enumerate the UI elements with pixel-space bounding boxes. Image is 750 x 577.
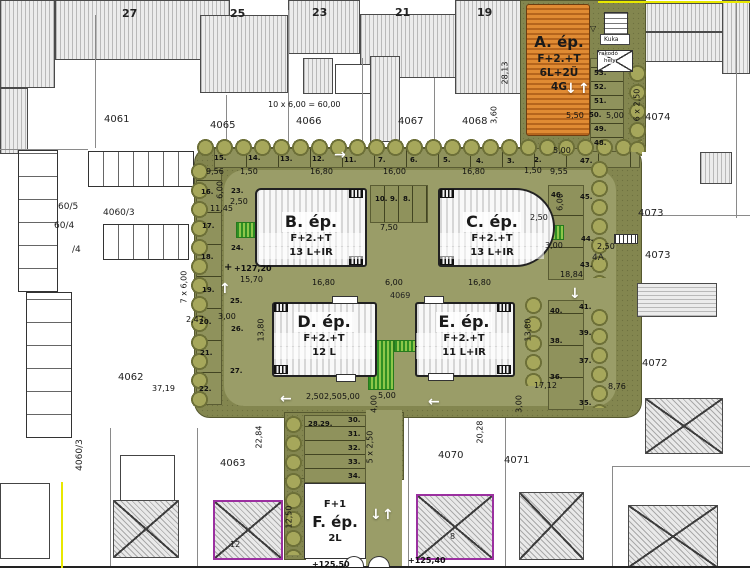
garage-row xyxy=(88,151,194,187)
parking-number: 41. xyxy=(579,303,591,311)
parking-number: 26. xyxy=(231,325,243,333)
dimension: 15,70 xyxy=(240,275,263,284)
parking-number: 30. xyxy=(348,416,360,424)
parking-number: 44. xyxy=(581,235,593,243)
parcel-number: 4060/3 xyxy=(103,208,135,218)
yellow-boundary xyxy=(61,482,63,568)
parcel-number: 60/4 xyxy=(54,221,74,231)
benchmark-icon: + xyxy=(224,262,232,273)
building-b-floors: F+2.+T xyxy=(259,233,363,246)
building-c-floors: F+2.+T xyxy=(440,233,544,246)
parcel-number: 4070 xyxy=(438,450,463,461)
dimension: 5,00 xyxy=(378,391,396,400)
parking-number: 2. xyxy=(534,156,542,164)
dimension: 4,00 xyxy=(370,395,379,413)
garage-row xyxy=(26,292,72,438)
parking-number: 39. xyxy=(579,329,591,337)
building-c-units: 13 L+IR xyxy=(440,247,544,260)
parking-number: 48. xyxy=(594,139,606,147)
parking-number: 53. xyxy=(594,69,606,77)
parking-number: 35. xyxy=(579,399,591,407)
parcel-number: 4067 xyxy=(398,116,423,127)
parking-number: 4. xyxy=(476,157,484,165)
dimension: 37,19 xyxy=(152,384,175,393)
parcel-line xyxy=(505,418,506,567)
parking-number: 37. xyxy=(579,357,591,365)
parking-number: 18. xyxy=(201,253,213,261)
parking-number: 9. xyxy=(390,195,398,203)
parking-number: 13. xyxy=(280,155,292,163)
house-number: 12 xyxy=(230,540,240,549)
stair-hatch xyxy=(349,189,363,198)
house-roof-purple xyxy=(416,494,494,560)
building-e-floors: F+2.+T xyxy=(416,333,512,346)
stair-hatch xyxy=(274,365,288,374)
building-c-label: C. ép. F+2.+T 13 L+IR xyxy=(440,212,544,259)
loading-area-label-1: rakodó xyxy=(599,51,618,57)
dimension: 5,50 xyxy=(566,111,584,120)
site-plan: A. ép. F+2.+T 6L+2Ü 4G ▽ Kuka rakodó hel… xyxy=(0,0,750,577)
parking-number: 34. xyxy=(348,472,360,480)
parking-number: 6. xyxy=(410,156,418,164)
parking-number: 23. xyxy=(231,187,243,195)
parcel-number: /4 xyxy=(72,245,81,255)
parking-number: 15. xyxy=(214,154,226,162)
dimension: 3,00 xyxy=(545,241,563,250)
parcel-number: 4066 xyxy=(296,116,321,127)
dimension: 13,80 xyxy=(257,319,266,342)
parking-strip-mid xyxy=(370,185,428,223)
street-number: 25 xyxy=(230,7,245,20)
building-e-units: 11 L+IR xyxy=(416,347,512,360)
dimension: 9,55 xyxy=(550,167,568,176)
dimension: 16,80 xyxy=(468,278,491,287)
outbuilding xyxy=(120,455,175,502)
dimension: 1,50 xyxy=(524,166,542,175)
arrow-left-icon: ← xyxy=(280,392,292,406)
dimension: 18,84 xyxy=(560,270,583,279)
stair-hatch xyxy=(497,303,511,312)
parcel-number: 4068 xyxy=(462,116,487,127)
parking-number: 24. xyxy=(231,244,243,252)
parcel-line xyxy=(362,58,363,148)
kuka-label: Kuka xyxy=(604,36,618,43)
neighbor-roof xyxy=(0,0,55,88)
garage-row xyxy=(18,150,58,292)
building-f-floors: F+1 xyxy=(304,499,366,512)
parking-number: 36. xyxy=(550,373,562,381)
parcel-number: 4060/3 xyxy=(75,439,85,471)
elevation-mark: +125,50 xyxy=(312,560,350,569)
parcel-line xyxy=(612,466,750,467)
garage-row xyxy=(103,224,189,260)
stair-hatch xyxy=(274,303,288,312)
arrow-down-icon: ↓ xyxy=(565,82,577,96)
neighbor-roof xyxy=(637,283,717,317)
house-roof xyxy=(628,505,718,568)
dimension: 17,12 xyxy=(534,381,557,390)
building-f-label: F+1 F. ép. 2L xyxy=(304,498,366,545)
entrance-stub xyxy=(428,373,454,381)
arrow-up-icon: ↑ xyxy=(219,282,231,296)
outbuilding-roof xyxy=(303,58,333,94)
parking-number: 8. xyxy=(403,195,411,203)
dimension: 16,00 xyxy=(383,167,406,176)
dimension: 8,76 xyxy=(608,382,626,391)
dimension: 12,50 xyxy=(285,506,294,529)
tree-row-east-lower xyxy=(590,308,609,408)
parking-number: 7. xyxy=(378,156,386,164)
elevation-mark: +125,40 xyxy=(408,556,446,565)
house-number: 8 xyxy=(450,532,455,541)
arrow-up-icon: ↑ xyxy=(578,82,590,96)
building-a-floors: F+2.+T xyxy=(522,53,596,66)
parcel-number: 4071 xyxy=(504,455,529,466)
dimension: 16,80 xyxy=(310,167,333,176)
elevation-mark: +127,20 xyxy=(234,264,272,273)
dimension: 28,13 xyxy=(501,62,510,85)
building-c-name: C. ép. xyxy=(463,212,521,232)
dimension: 16,80 xyxy=(462,167,485,176)
neighbor-roof xyxy=(200,15,288,93)
building-d-units: 12 L xyxy=(274,347,374,360)
arrow-right-icon: → xyxy=(334,148,346,162)
dimension: 3,60 xyxy=(490,106,499,124)
parking-number: 3. xyxy=(507,157,515,165)
dimension: 5,00 xyxy=(553,146,571,155)
house-roof-purple xyxy=(213,500,283,560)
building-a-units: 6L+2Ü xyxy=(522,67,596,80)
house-roof xyxy=(113,500,179,558)
tree-row-north xyxy=(196,138,642,158)
parking-number: 43. xyxy=(580,261,592,269)
parcel-number: 4069 xyxy=(390,291,410,300)
parcel-line xyxy=(288,10,289,148)
triangle-icon: ▽ xyxy=(590,24,596,33)
parking-number: 21. xyxy=(200,349,212,357)
building-d-name: D. ép. xyxy=(294,312,353,332)
parcel-number: 4062 xyxy=(118,372,143,383)
parcel-number: 4072 xyxy=(642,358,667,369)
parking-number: 29. xyxy=(320,420,332,428)
parking-number: 19. xyxy=(202,286,214,294)
house-roof xyxy=(519,492,584,560)
dimension: 10 x 6,00 = 60,00 xyxy=(268,100,341,109)
neighbor-roof xyxy=(0,88,28,154)
parking-number: 32. xyxy=(348,444,360,452)
dimension: 6,00 xyxy=(216,181,225,199)
parcel-number: 4065 xyxy=(210,120,235,131)
dimension: 3,00 xyxy=(515,395,524,413)
playground-patch xyxy=(236,222,256,238)
parcel-number: 60/5 xyxy=(58,202,78,212)
stair-icon xyxy=(614,234,638,244)
shed xyxy=(0,483,50,559)
neighbor-roof xyxy=(700,152,732,184)
building-b-label: B. ép. F+2.+T 13 L+IR xyxy=(259,212,363,259)
entrance-stub xyxy=(336,374,356,382)
parcel-number: 4A xyxy=(592,253,604,263)
dimension: 6 x 2,50 xyxy=(633,89,642,122)
parking-strip-east-lower xyxy=(548,300,584,410)
building-f-name: F. ép. xyxy=(309,513,361,532)
dimension: 5,00 xyxy=(606,111,624,120)
dimension: 16,80 xyxy=(312,278,335,287)
building-f-units: 2L xyxy=(304,533,366,546)
dimension: 5 x 2,50 xyxy=(366,431,375,464)
parking-number: 10. xyxy=(375,195,387,203)
stair-hatch xyxy=(440,189,454,198)
street-number: 23 xyxy=(312,6,327,19)
parcel-line xyxy=(736,0,737,218)
parking-number: 25. xyxy=(230,297,242,305)
parking-number: 50. xyxy=(589,111,601,119)
dimension: 2,50 xyxy=(597,242,615,251)
parcel-number: 4073 xyxy=(638,208,663,219)
arrow-down-icon: ↓ xyxy=(370,508,382,522)
parking-number: 52. xyxy=(594,83,606,91)
loading-area-label-2: hely xyxy=(604,58,616,64)
parking-number: 40. xyxy=(550,307,562,315)
parcel-line xyxy=(95,15,96,148)
dimension: 1,50 xyxy=(240,167,258,176)
parking-number: 5. xyxy=(443,156,451,164)
parking-number: 45. xyxy=(580,193,592,201)
parking-number: 28. xyxy=(308,420,320,428)
building-a-name: A. ép. xyxy=(531,33,586,52)
dimension: 22,84 xyxy=(255,426,264,449)
parking-number: 49. xyxy=(594,125,606,133)
parcel-line xyxy=(408,418,409,567)
parking-number: 20. xyxy=(199,318,211,326)
building-e-name: E. ép. xyxy=(436,312,493,332)
arrow-down-icon: ↓ xyxy=(569,287,581,301)
parking-number: 38. xyxy=(550,337,562,345)
dimension: 9,56 xyxy=(206,167,224,176)
building-b-units: 13 L+IR xyxy=(259,247,363,260)
parking-number: 46. xyxy=(551,191,563,199)
stair-hatch xyxy=(497,365,511,374)
dimension: 2,50 xyxy=(306,392,324,401)
street-number: 21 xyxy=(395,6,410,19)
street-number: 19 xyxy=(477,6,492,19)
building-d-floors: F+2.+T xyxy=(274,333,374,346)
parcel-number: 4063 xyxy=(220,458,245,469)
entrance-stub xyxy=(424,296,444,304)
parking-number: 27. xyxy=(230,367,242,375)
parking-number: 33. xyxy=(348,458,360,466)
parking-number: 22. xyxy=(199,385,211,393)
parcel-line xyxy=(197,428,198,567)
parcel-number: 4074 xyxy=(645,112,670,123)
dimension: 5,00 xyxy=(342,392,360,401)
house-roof xyxy=(645,398,723,454)
dimension: 2,50 xyxy=(230,197,248,206)
arrow-up-icon: ↑ xyxy=(382,508,394,522)
dimension: 6,00 xyxy=(385,278,403,287)
dimension: 2,50 xyxy=(530,213,548,222)
parking-number: 51. xyxy=(594,97,606,105)
street-number: 27 xyxy=(122,7,137,20)
parcel-line xyxy=(110,428,111,567)
dimension: 13,80 xyxy=(524,319,533,342)
parking-number: 47. xyxy=(580,157,592,165)
dimension: 7 x 6,00 xyxy=(180,271,189,304)
building-d-label: D. ép. F+2.+T 12 L xyxy=(274,312,374,359)
parking-number: 17. xyxy=(202,222,214,230)
dimension: 20,28 xyxy=(476,421,485,444)
dimension: 7,50 xyxy=(380,223,398,232)
parcel-number: 4073 xyxy=(645,250,670,261)
arrow-left-icon: ← xyxy=(428,395,440,409)
yellow-boundary xyxy=(598,1,750,3)
parking-number: 31. xyxy=(348,430,360,438)
dimension: 3,00 xyxy=(218,312,236,321)
building-e-label: E. ép. F+2.+T 11 L+IR xyxy=(416,312,512,359)
entrance-stub xyxy=(332,296,358,304)
outbuilding-roof xyxy=(370,56,400,142)
outbuilding xyxy=(335,64,375,94)
parking-number: 14. xyxy=(248,154,260,162)
dimension: 2,50 xyxy=(324,392,342,401)
tree-row-stem xyxy=(284,415,304,555)
parcel-number: 4061 xyxy=(104,114,129,125)
building-b-name: B. ép. xyxy=(282,212,340,232)
parking-number: 16. xyxy=(201,188,213,196)
parcel-line xyxy=(612,466,613,567)
parking-number: 12. xyxy=(312,155,324,163)
